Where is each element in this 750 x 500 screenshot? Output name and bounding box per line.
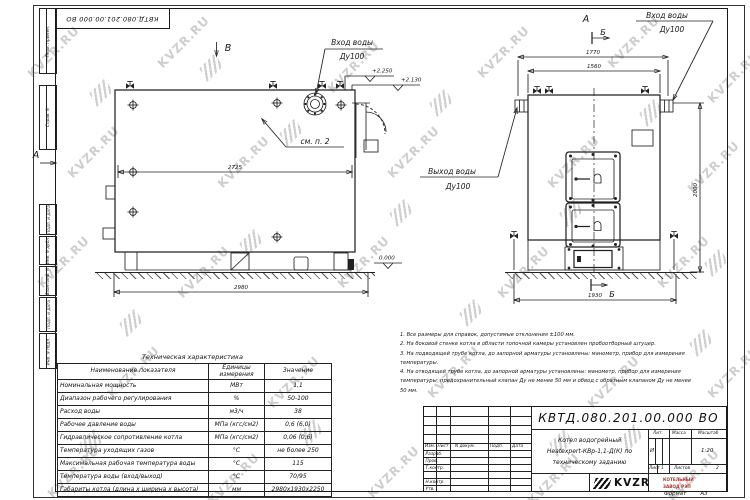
section-b-top-label: Б (600, 28, 606, 37)
right-view-drawing: 1770 1560 2000 1930 А Б Б Вход воды Ду10… (420, 11, 713, 304)
dim-2980: 2980 (234, 285, 248, 291)
param-value: 115 (265, 458, 332, 471)
note-line: 50 мм. (400, 387, 660, 396)
grid-line (424, 434, 531, 435)
grid-line (648, 438, 726, 439)
dim-1770: 1770 (586, 50, 600, 56)
param-unit: мм (209, 484, 265, 497)
doc-name-line: Heatexpert-КВр-1,1-Д(К) по (547, 446, 632, 457)
elevation-zero: 0.000 (379, 256, 395, 262)
view-b-label: В (225, 43, 232, 54)
grid-line (655, 438, 656, 464)
header-izm: Изм. (425, 444, 435, 449)
param-unit: % (209, 393, 265, 406)
ground-hatch-right (505, 272, 697, 279)
company-name-line2: ЗАВОД РЭП (663, 484, 691, 489)
grid-line (424, 416, 531, 417)
param-unit: МПа (кгс/см2) (209, 432, 265, 445)
note-line: 3. На подводящей трубе котла, до запорно… (400, 350, 660, 359)
grid-line (669, 464, 670, 473)
param-value: 2980х1930х2250 (265, 484, 332, 497)
format-label: Формат (664, 491, 686, 497)
grid-line (662, 438, 663, 464)
doc-name-line: техническому заданию (553, 457, 627, 468)
row-prov: Пров. (426, 459, 439, 464)
table-row: Габариты котла (длина х ширина х высота)… (58, 484, 332, 497)
drawing-sheet: KVZR.RUKVZR.RUKVZR.RUKVZR.RUKVZR.RUKVZR.… (0, 0, 750, 500)
param-unit: °С (209, 458, 265, 471)
note-line: 4. На отводящей трубе котла, до запорной… (400, 368, 660, 377)
param-name: Номинальная мощность (58, 380, 209, 393)
lower-furnace-door (566, 203, 620, 248)
param-name: Температура уходящих газов (58, 445, 209, 458)
grid-line (531, 473, 726, 474)
ground-hatch-left (95, 272, 375, 279)
table-row: Максимальная рабочая температура воды°С1… (58, 458, 332, 471)
left-view-drawing: 2725 2980 +2.250 +2.130 0.000 Вход воды … (32, 38, 422, 297)
grid-line (589, 473, 590, 491)
tech-table-title: Техническая характеристика (57, 353, 328, 361)
grid-line (424, 485, 531, 486)
inlet-flange (304, 93, 326, 115)
format-value: А3 (700, 491, 707, 497)
param-name: Максимальная рабочая температура воды (58, 458, 209, 471)
header-data: Дата (512, 444, 523, 449)
header-cell: Единицы измерения (209, 364, 265, 380)
lit-value: И (650, 448, 654, 454)
see-note-label: см. п. 2 (301, 137, 330, 146)
table-row: Диапазон рабочего регулирования%50-100 (58, 393, 332, 406)
elevation-2130: +2.130 (401, 78, 422, 84)
param-name: Габариты котла (длина х ширина х высота) (58, 484, 209, 497)
grid-line (424, 471, 531, 472)
section-a-label: А (32, 150, 40, 161)
header-n-dokum: N докум. (455, 444, 475, 449)
outlet-label: Выход воды (428, 167, 476, 176)
scale-label: Масштаб (698, 431, 718, 436)
outlet-dn: Ду100 (445, 182, 471, 191)
param-unit: МПа (кгс/см2) (209, 419, 265, 432)
dim-1930: 1930 (588, 293, 602, 299)
notes-block: 1. Все размеры для справок, допустимые о… (400, 331, 660, 396)
sheet-value: 1 (661, 466, 664, 471)
param-value: 1,1 (265, 380, 332, 393)
param-value: 38 (265, 406, 332, 419)
note-line: температуры. (400, 359, 660, 368)
header-list: Лист (438, 444, 449, 449)
kvzr-logo-icon (592, 478, 612, 489)
param-unit: м3/ч (209, 406, 265, 419)
param-name: Расход воды (58, 406, 209, 419)
sheets-label: Листов (674, 466, 690, 471)
right-inlet-dn: Ду100 (659, 25, 685, 34)
dim-1560: 1560 (587, 64, 601, 70)
param-name: Гидравлическое сопротивление котла (58, 432, 209, 445)
note-line: 1. Все размеры для справок, допустимые о… (400, 331, 660, 340)
table-row: Гидравлическое сопротивление котлаМПа (к… (58, 432, 332, 445)
param-unit: °С (209, 471, 265, 484)
format-note: ФорматА3 (664, 491, 708, 497)
table-row: Рабочее давление водыМПа (кгс/см2)0,6 (6… (58, 419, 332, 432)
header-cell: Наименование показателя (58, 364, 209, 380)
table-row: Номинальная мощностьМВт1,1 (58, 380, 332, 393)
scale-value: 1:20 (701, 448, 713, 454)
table-row: Температура уходящих газов°Сне более 250 (58, 445, 332, 458)
mass-label: Масса (672, 431, 686, 436)
param-unit: МВт (209, 380, 265, 393)
left-inlet-dn: Ду100 (339, 52, 365, 61)
company-name-line1: КОТЕЛЬНЫЙ (663, 477, 694, 482)
table-header-row: Наименование показателя Единицы измерени… (58, 364, 332, 380)
param-name: Температура воды (вход/выход) (58, 471, 209, 484)
grid-line (669, 429, 670, 464)
param-value: не более 250 (265, 445, 332, 458)
row-razrab: Разраб. (426, 452, 443, 457)
row-t-kontr: Т.контр. (426, 466, 445, 471)
row-utv: Утв. (426, 487, 435, 492)
grid-line (424, 425, 531, 426)
param-value: 70/95 (265, 471, 332, 484)
table-row: Температура воды (вход/выход)°С70/95 (58, 471, 332, 484)
company-logo-text: KVZR (614, 477, 650, 489)
title-block-designation: КВТД.080.201.00.000 ВО (531, 407, 726, 429)
dim-2000: 2000 (693, 183, 699, 197)
param-value: 50-100 (265, 393, 332, 406)
upper-furnace-door (566, 152, 620, 202)
section-b-bottom-label: Б (609, 290, 615, 299)
grid-line (691, 429, 692, 464)
elevation-2250: +2.250 (372, 69, 393, 75)
sheet-label: Лист (649, 466, 660, 471)
sheets-value: 2 (716, 466, 719, 471)
view-a-label: А (582, 14, 590, 25)
param-value: 0,06 (0,6) (265, 432, 332, 445)
note-line: температуры; предохранительный клапан Ду… (400, 377, 660, 386)
param-name: Рабочее давление воды (58, 419, 209, 432)
table-row: Расход водым3/ч38 (58, 406, 332, 419)
note-line: 2. На боковой стенке котла в области топ… (400, 340, 660, 349)
lit-label: Лит. (653, 431, 663, 436)
grid-line (424, 457, 531, 458)
header-cell: Значение (265, 364, 332, 380)
grid-line (648, 464, 726, 465)
param-name: Диапазон рабочего регулирования (58, 393, 209, 406)
row-n-kontr: Н.контр. (426, 480, 445, 485)
right-inlet-label: Вход воды (646, 11, 688, 20)
left-inlet-label: Вход воды (331, 38, 373, 47)
doc-name-line: Котел водогрейный (558, 435, 621, 446)
param-value: 0,6 (6,0) (265, 419, 332, 432)
document-name: Котел водогрейный Heatexpert-КВр-1,1-Д(К… (531, 430, 648, 472)
param-unit: °С (209, 445, 265, 458)
dim-2725: 2725 (228, 165, 242, 171)
header-podp: Подп. (490, 444, 503, 449)
tech-table: Наименование показателя Единицы измерени… (57, 363, 332, 497)
title-block: Изм. Лист N докум. Подп. Дата Разраб. Пр… (423, 406, 727, 492)
